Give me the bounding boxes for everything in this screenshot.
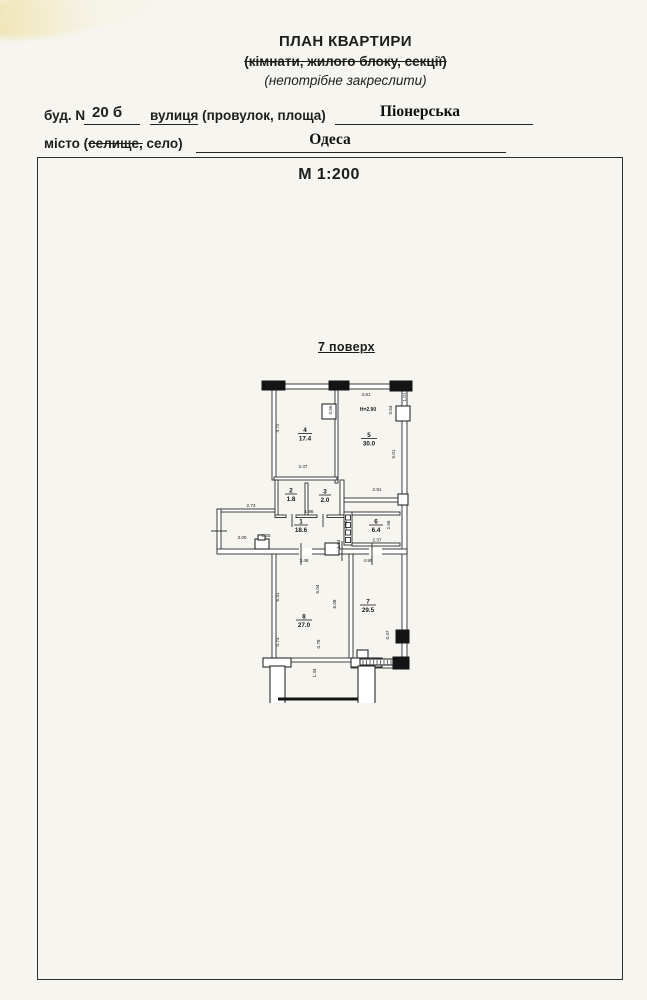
room5-number: 5	[367, 432, 371, 439]
dim-r8-bottom-right: 0.78	[316, 639, 321, 648]
vent-cell	[346, 515, 351, 520]
room3-area: 2.0	[321, 497, 330, 504]
room1-area: 18.6	[295, 527, 308, 534]
wall-segment	[296, 515, 317, 518]
room6-area: 6.4	[372, 527, 381, 534]
railing-band	[360, 659, 393, 665]
building-number-value: 20 б	[92, 104, 122, 121]
room4-number: 4	[303, 427, 307, 434]
room6-number: 6	[374, 519, 378, 526]
dim-r5-corner: 1.01	[402, 392, 407, 401]
dim-r5-jamb: 0.54	[388, 405, 393, 414]
room2-number: 2	[289, 488, 293, 495]
dim-r7-right: 0.47	[385, 630, 390, 639]
column	[396, 630, 409, 643]
wall-segment	[344, 498, 404, 502]
wall-segment	[275, 480, 278, 517]
dim-r8-bottom-left: 0.73	[275, 637, 280, 646]
wall-segment	[335, 389, 338, 483]
room4-area: 17.4	[299, 436, 312, 443]
street-word: вулиця	[150, 108, 198, 125]
dim-r4-right: 0.55	[328, 405, 333, 414]
room-labels: 4 17.4 5 30.0 2 1.8 3 2.0 1 18.6 6 6.4 8…	[287, 407, 381, 629]
vent-cell	[346, 538, 351, 543]
balcony-pillar-stem	[358, 666, 375, 703]
street-label-rest: (провулок, площа)	[198, 108, 325, 123]
dim-balcony: 1.34	[312, 668, 317, 677]
dim-hall-left: 3.00	[238, 535, 247, 540]
wall-segment	[275, 515, 286, 518]
pier-block	[396, 406, 410, 421]
dim-r5-bottom: 2.91	[373, 487, 382, 492]
wall-segment	[217, 509, 221, 552]
wall-segment	[217, 509, 275, 512]
dimension-labels: 4.91 1.01 0.54 0.55 4.72 5.01 3.37 2.91 …	[238, 392, 407, 677]
floor-label: 7 поверх	[318, 340, 375, 354]
building-number-label: буд. N	[44, 108, 85, 123]
wall-segment	[352, 543, 400, 546]
walls	[217, 384, 410, 669]
page-title: ПЛАН КВАРТИРИ	[0, 33, 647, 50]
city-label-struck: селище,	[88, 136, 143, 151]
room7-area: 29.5	[362, 607, 375, 614]
page-subtitle-note: (непотрібне закреслити)	[0, 73, 647, 88]
wall-segment	[349, 554, 353, 661]
dim-r8-inner: 5.04	[315, 584, 320, 593]
dim-hall-top: 2.73	[247, 503, 256, 508]
scale-label: М 1:200	[37, 166, 621, 184]
city-label-post: село)	[143, 136, 183, 151]
ceiling-height-note: Н=2.90	[360, 407, 376, 413]
wall-segment	[327, 515, 344, 518]
vent-cell	[346, 530, 351, 535]
city-value: Одеса	[255, 131, 405, 149]
wall-segment	[402, 387, 407, 669]
scanned-apartment-plan-page: ПЛАН КВАРТИРИ (кімнати, жилого блоку, се…	[0, 0, 647, 1000]
floor-plan-drawing: 4 17.4 5 30.0 2 1.8 3 2.0 1 18.6 6 6.4 8…	[205, 373, 420, 703]
room7-number: 7	[366, 599, 370, 606]
room8-number: 8	[302, 614, 306, 621]
dim-r5-top: 4.91	[362, 392, 371, 397]
dim-r4-left: 4.72	[275, 423, 280, 432]
room1-number: 1	[299, 519, 303, 526]
dim-r8-left: 6.31	[275, 592, 280, 601]
column	[390, 381, 412, 391]
wall-segment	[340, 480, 344, 517]
dim-r23-bottom: 1.98	[305, 509, 314, 514]
street-label: вулиця (провулок, площа)	[150, 108, 326, 123]
room3-number: 3	[323, 489, 327, 496]
pier-block	[357, 650, 368, 658]
dim-r8-top: 3.48	[300, 558, 309, 563]
dim-r7-top: 4.90	[364, 558, 373, 563]
pier-block	[398, 494, 408, 505]
balcony-pillar-stem	[270, 666, 285, 703]
wall-segment	[272, 387, 276, 480]
room5-area: 30.0	[363, 441, 376, 448]
door-gap	[369, 548, 382, 555]
dim-r7-left: 6.08	[332, 599, 337, 608]
street-value: Піонерська	[340, 103, 500, 121]
column	[393, 657, 409, 669]
column	[329, 381, 349, 390]
dim-r6-bottom: 2.37	[373, 538, 382, 543]
dim-r4-bottom: 3.37	[299, 464, 308, 469]
wall-segment	[274, 477, 337, 480]
dim-r6-door: 1.84	[336, 539, 341, 548]
city-label-pre: місто (	[44, 136, 88, 151]
city-label: місто (селище, село)	[44, 136, 183, 151]
wall-segment	[352, 512, 400, 515]
room2-area: 1.8	[287, 496, 296, 503]
page-subtitle-struck: (кімнати, жилого блоку, секції)	[0, 54, 647, 69]
dim-r5-right: 5.01	[391, 449, 396, 458]
dim-vent: 2.64	[343, 520, 348, 529]
dim-hall-small: 1.25	[262, 533, 271, 538]
dim-r6-right: 2.56	[386, 520, 391, 529]
room8-area: 27.0	[298, 622, 311, 629]
column	[262, 381, 285, 390]
